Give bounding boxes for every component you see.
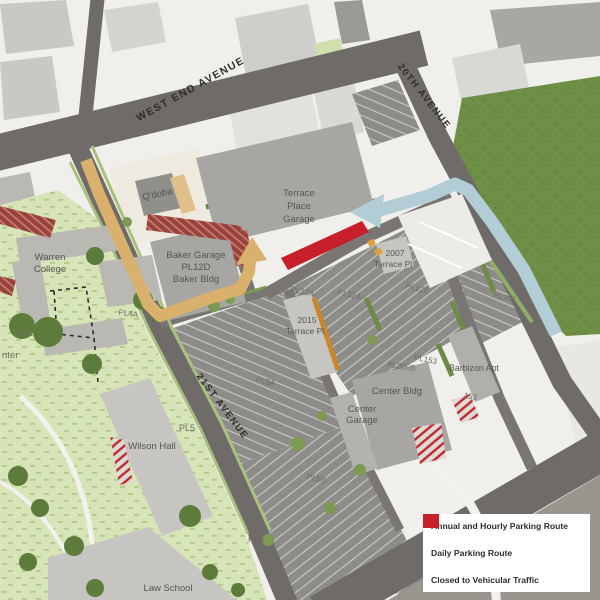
label-center-garage-2: Garage [346, 415, 378, 426]
label-pl1: PL1 [19, 329, 34, 338]
legend-label-annual-hourly: Annual and Hourly Parking Route [431, 521, 568, 531]
legend: Annual and Hourly Parking Route Daily Pa… [423, 514, 590, 592]
label-2015-terrace: 2015 [298, 315, 317, 325]
legend-label-closed: Closed to Vehicular Traffic [431, 575, 539, 585]
legend-row-daily: Daily Parking Route [431, 548, 582, 558]
legend-label-daily: Daily Parking Route [431, 548, 512, 558]
label-baker-garage: Baker Garage [166, 250, 225, 261]
closed-swatch [423, 514, 439, 528]
label-law-school: Law School [143, 583, 192, 594]
label-terrace-place-garage-2: Place [287, 201, 311, 212]
label-warren-college-2: College [34, 264, 66, 275]
label-2015-terrace-2: Terrace Pl [286, 326, 324, 336]
label-2007-terrace-2: Terrace Pl [374, 259, 412, 269]
label-warren-college: Warren [35, 252, 66, 263]
label-pl5: PL5 [179, 423, 195, 433]
campus-parking-map: WEST END AVENUE 20TH AVENUE 21ST AVENUE … [0, 0, 600, 600]
label-baker-bldg: Baker Bldg [173, 274, 219, 285]
legend-row-closed: Closed to Vehicular Traffic [431, 575, 582, 585]
label-center-bldg: Center Bldg [372, 386, 422, 397]
closed-swatch-rect [423, 514, 439, 528]
label-center-garage: Center [348, 404, 377, 415]
label-baker-pl12d: PL12D [181, 262, 210, 273]
legend-row-annual-hourly: Annual and Hourly Parking Route [431, 521, 582, 531]
map-canvas: WEST END AVENUE 20TH AVENUE 21ST AVENUE … [0, 0, 600, 600]
label-edge-partial: nter [2, 350, 18, 361]
label-pl6: PL6 [248, 534, 264, 544]
label-wilson-hall: Wilson Hall [128, 441, 176, 452]
label-barbizon-apt: Barbizon Apt [449, 363, 499, 373]
label-2007-terrace: 2007 [386, 248, 405, 258]
label-terrace-place-garage-3: Garage [283, 214, 315, 225]
label-terrace-place-garage: Terrace [283, 188, 315, 199]
